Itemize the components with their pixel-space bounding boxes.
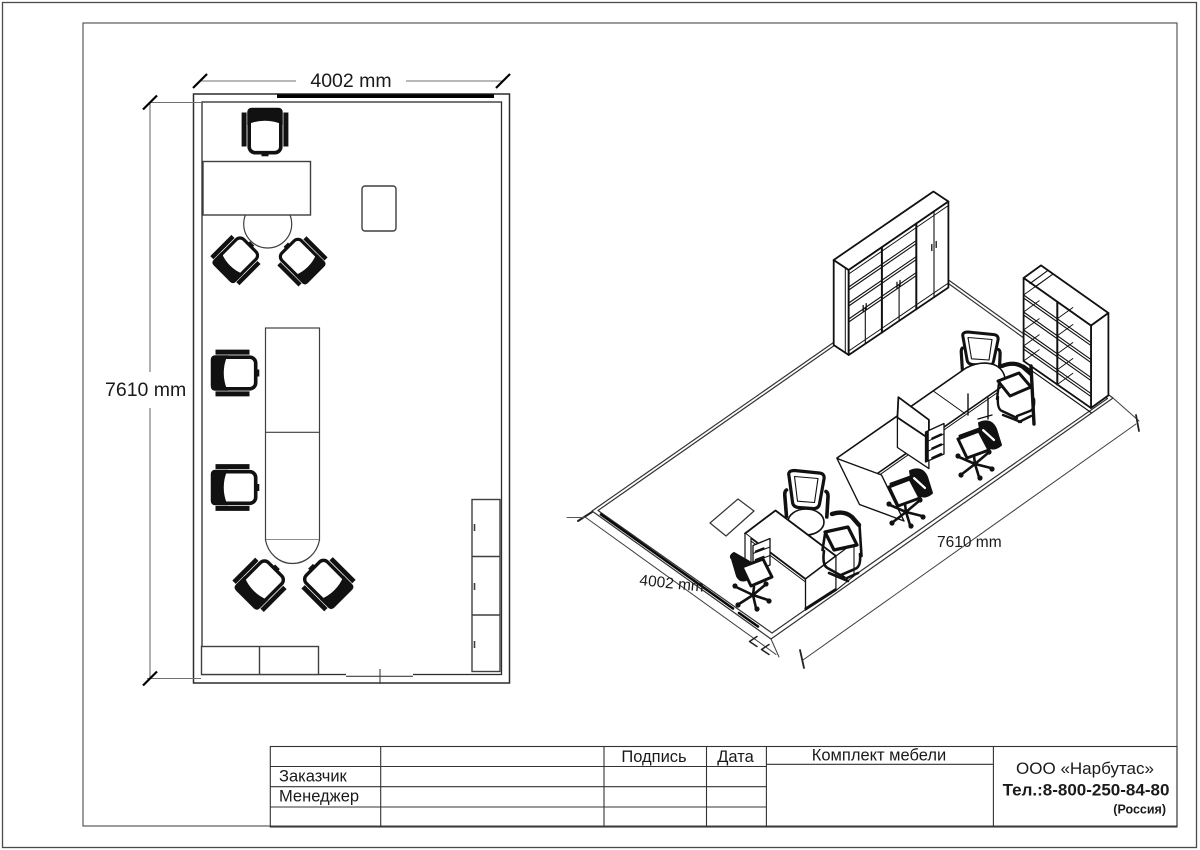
svg-text:Дата: Дата	[717, 748, 754, 766]
svg-text:7610 mm: 7610 mm	[105, 379, 186, 401]
svg-text:(Россия): (Россия)	[1113, 803, 1166, 817]
svg-text:7610 mm: 7610 mm	[937, 534, 1002, 551]
svg-text:Заказчик: Заказчик	[279, 768, 348, 786]
svg-text:Тел.:8-800-250-84-80: Тел.:8-800-250-84-80	[1003, 781, 1170, 800]
svg-text:4002 mm: 4002 mm	[310, 70, 391, 92]
svg-text:Подпись: Подпись	[621, 748, 686, 766]
svg-text:Комплект мебели: Комплект мебели	[812, 747, 947, 765]
svg-text:ООО «Нарбутас»: ООО «Нарбутас»	[1016, 759, 1154, 778]
svg-text:Менеджер: Менеджер	[279, 788, 359, 806]
